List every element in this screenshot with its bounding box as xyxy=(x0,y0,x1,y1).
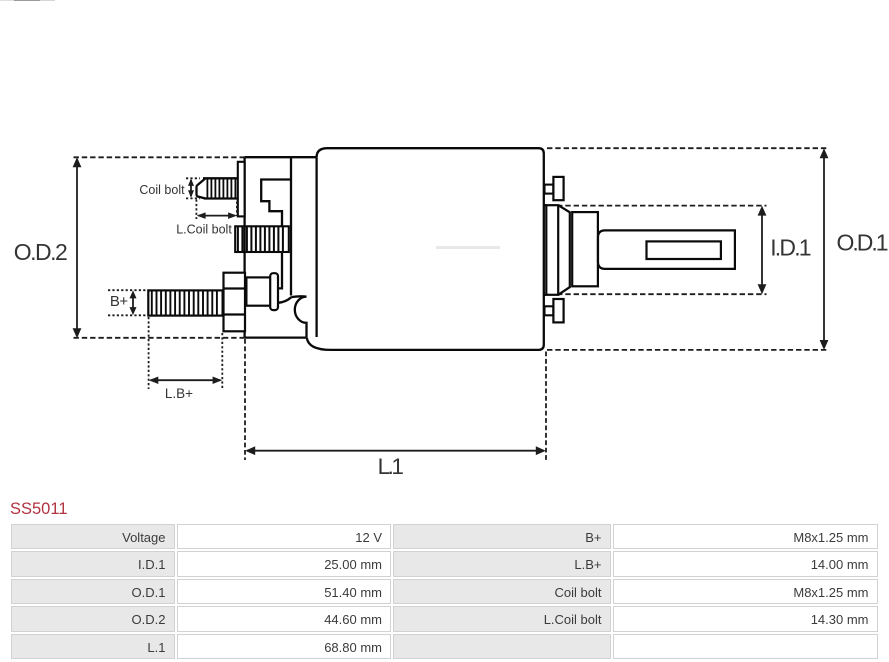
svg-text:O.D.1: O.D.1 xyxy=(836,230,887,256)
svg-text:B+: B+ xyxy=(110,293,129,310)
svg-text:O.D.2: O.D.2 xyxy=(14,239,67,265)
svg-text:I.D.1: I.D.1 xyxy=(770,235,811,261)
svg-text:L.B+: L.B+ xyxy=(165,386,193,401)
svg-text:L.1: L.1 xyxy=(378,454,404,479)
svg-text:Coil bolt: Coil bolt xyxy=(139,183,185,197)
svg-text:L.Coil bolt: L.Coil bolt xyxy=(176,223,232,237)
